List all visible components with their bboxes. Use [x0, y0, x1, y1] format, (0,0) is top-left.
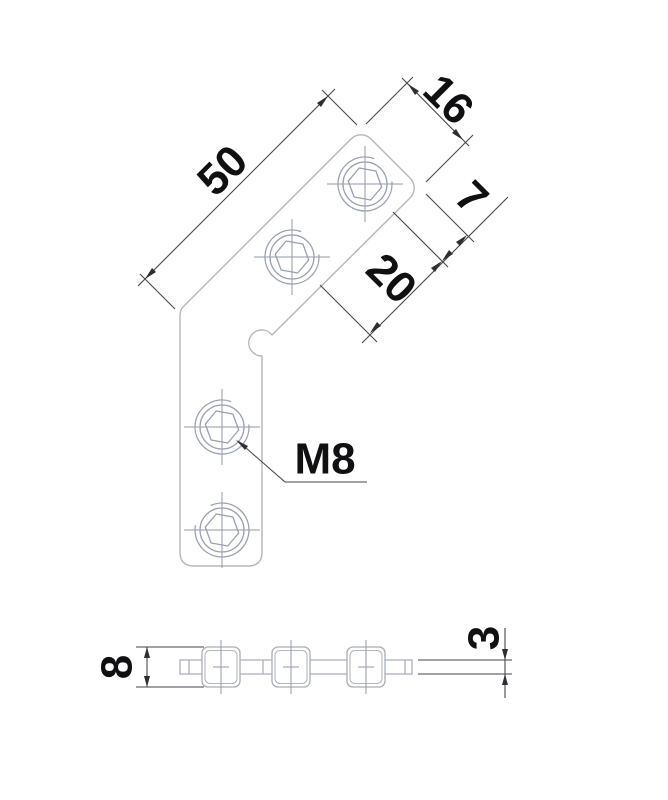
main-view: 50 16 7 20 M8 — [138, 65, 508, 568]
nut-3 — [347, 640, 385, 694]
dimension-3: 3 — [418, 626, 512, 698]
dim-label-20: 20 — [357, 244, 426, 313]
thread-callout-m8: M8 — [236, 434, 367, 483]
dimension-16: 16 — [366, 65, 483, 182]
dim-50-ext-top — [322, 90, 357, 125]
thread-label-m8: M8 — [294, 434, 355, 483]
dim-16-ext-left — [366, 77, 413, 124]
dim-8-arrow-top — [144, 647, 150, 658]
hole-top — [327, 146, 403, 222]
bracket-outline — [180, 135, 414, 566]
hole-m8 — [184, 389, 260, 465]
dim-20-arrow-upper — [431, 261, 442, 272]
nut-1 — [202, 640, 240, 694]
technical-drawing: 50 16 7 20 M8 — [0, 0, 668, 800]
dim-chain-ext-hole2 — [320, 285, 377, 342]
dim-label-8: 8 — [92, 655, 141, 679]
dim-label-16: 16 — [414, 65, 483, 134]
dim-7-arrow-inner — [442, 250, 453, 261]
dim-16-ext-right — [426, 135, 473, 182]
nut-2 — [272, 640, 310, 694]
dimension-50: 50 — [138, 89, 357, 309]
dim-label-50: 50 — [188, 136, 257, 205]
dim-label-3: 3 — [459, 626, 508, 650]
dim-20-arrow-lower — [370, 322, 381, 333]
hole-upper-mid — [254, 219, 330, 295]
drawing-canvas: 50 16 7 20 M8 — [0, 0, 668, 800]
hole-bottom — [184, 492, 260, 568]
dim-8-arrow-bottom — [144, 676, 150, 687]
dim-7-arrow-outer — [456, 235, 467, 246]
dim-3-arrow-bottom — [502, 674, 508, 685]
side-view: 8 3 — [92, 626, 512, 698]
